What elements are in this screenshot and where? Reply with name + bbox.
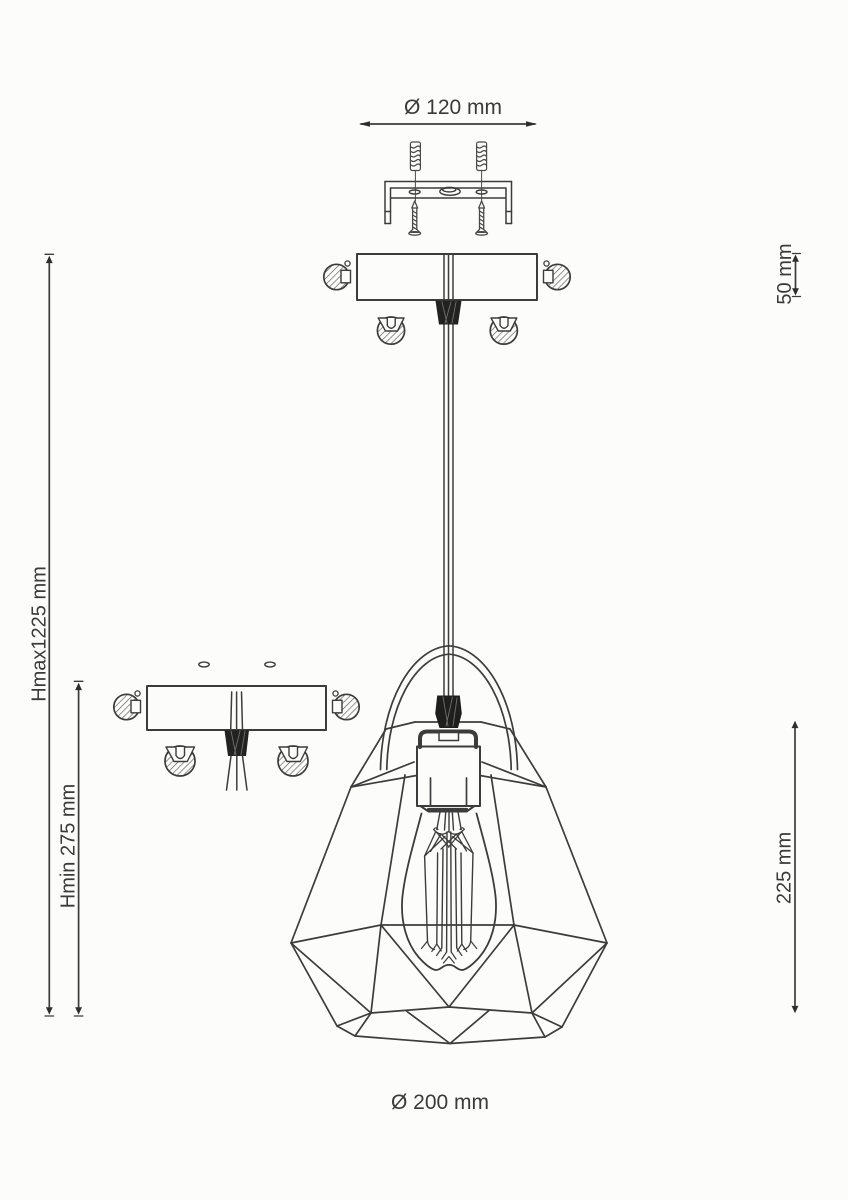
svg-text:Ø 200 mm: Ø 200 mm xyxy=(391,1091,489,1114)
svg-text:225 mm: 225 mm xyxy=(774,832,796,904)
svg-text:Ø 120 mm: Ø 120 mm xyxy=(404,96,502,119)
svg-text:Hmax1225 mm: Hmax1225 mm xyxy=(29,566,51,702)
svg-text:50 mm: 50 mm xyxy=(774,243,796,304)
svg-text:Hmin 275 mm: Hmin 275 mm xyxy=(58,784,80,908)
